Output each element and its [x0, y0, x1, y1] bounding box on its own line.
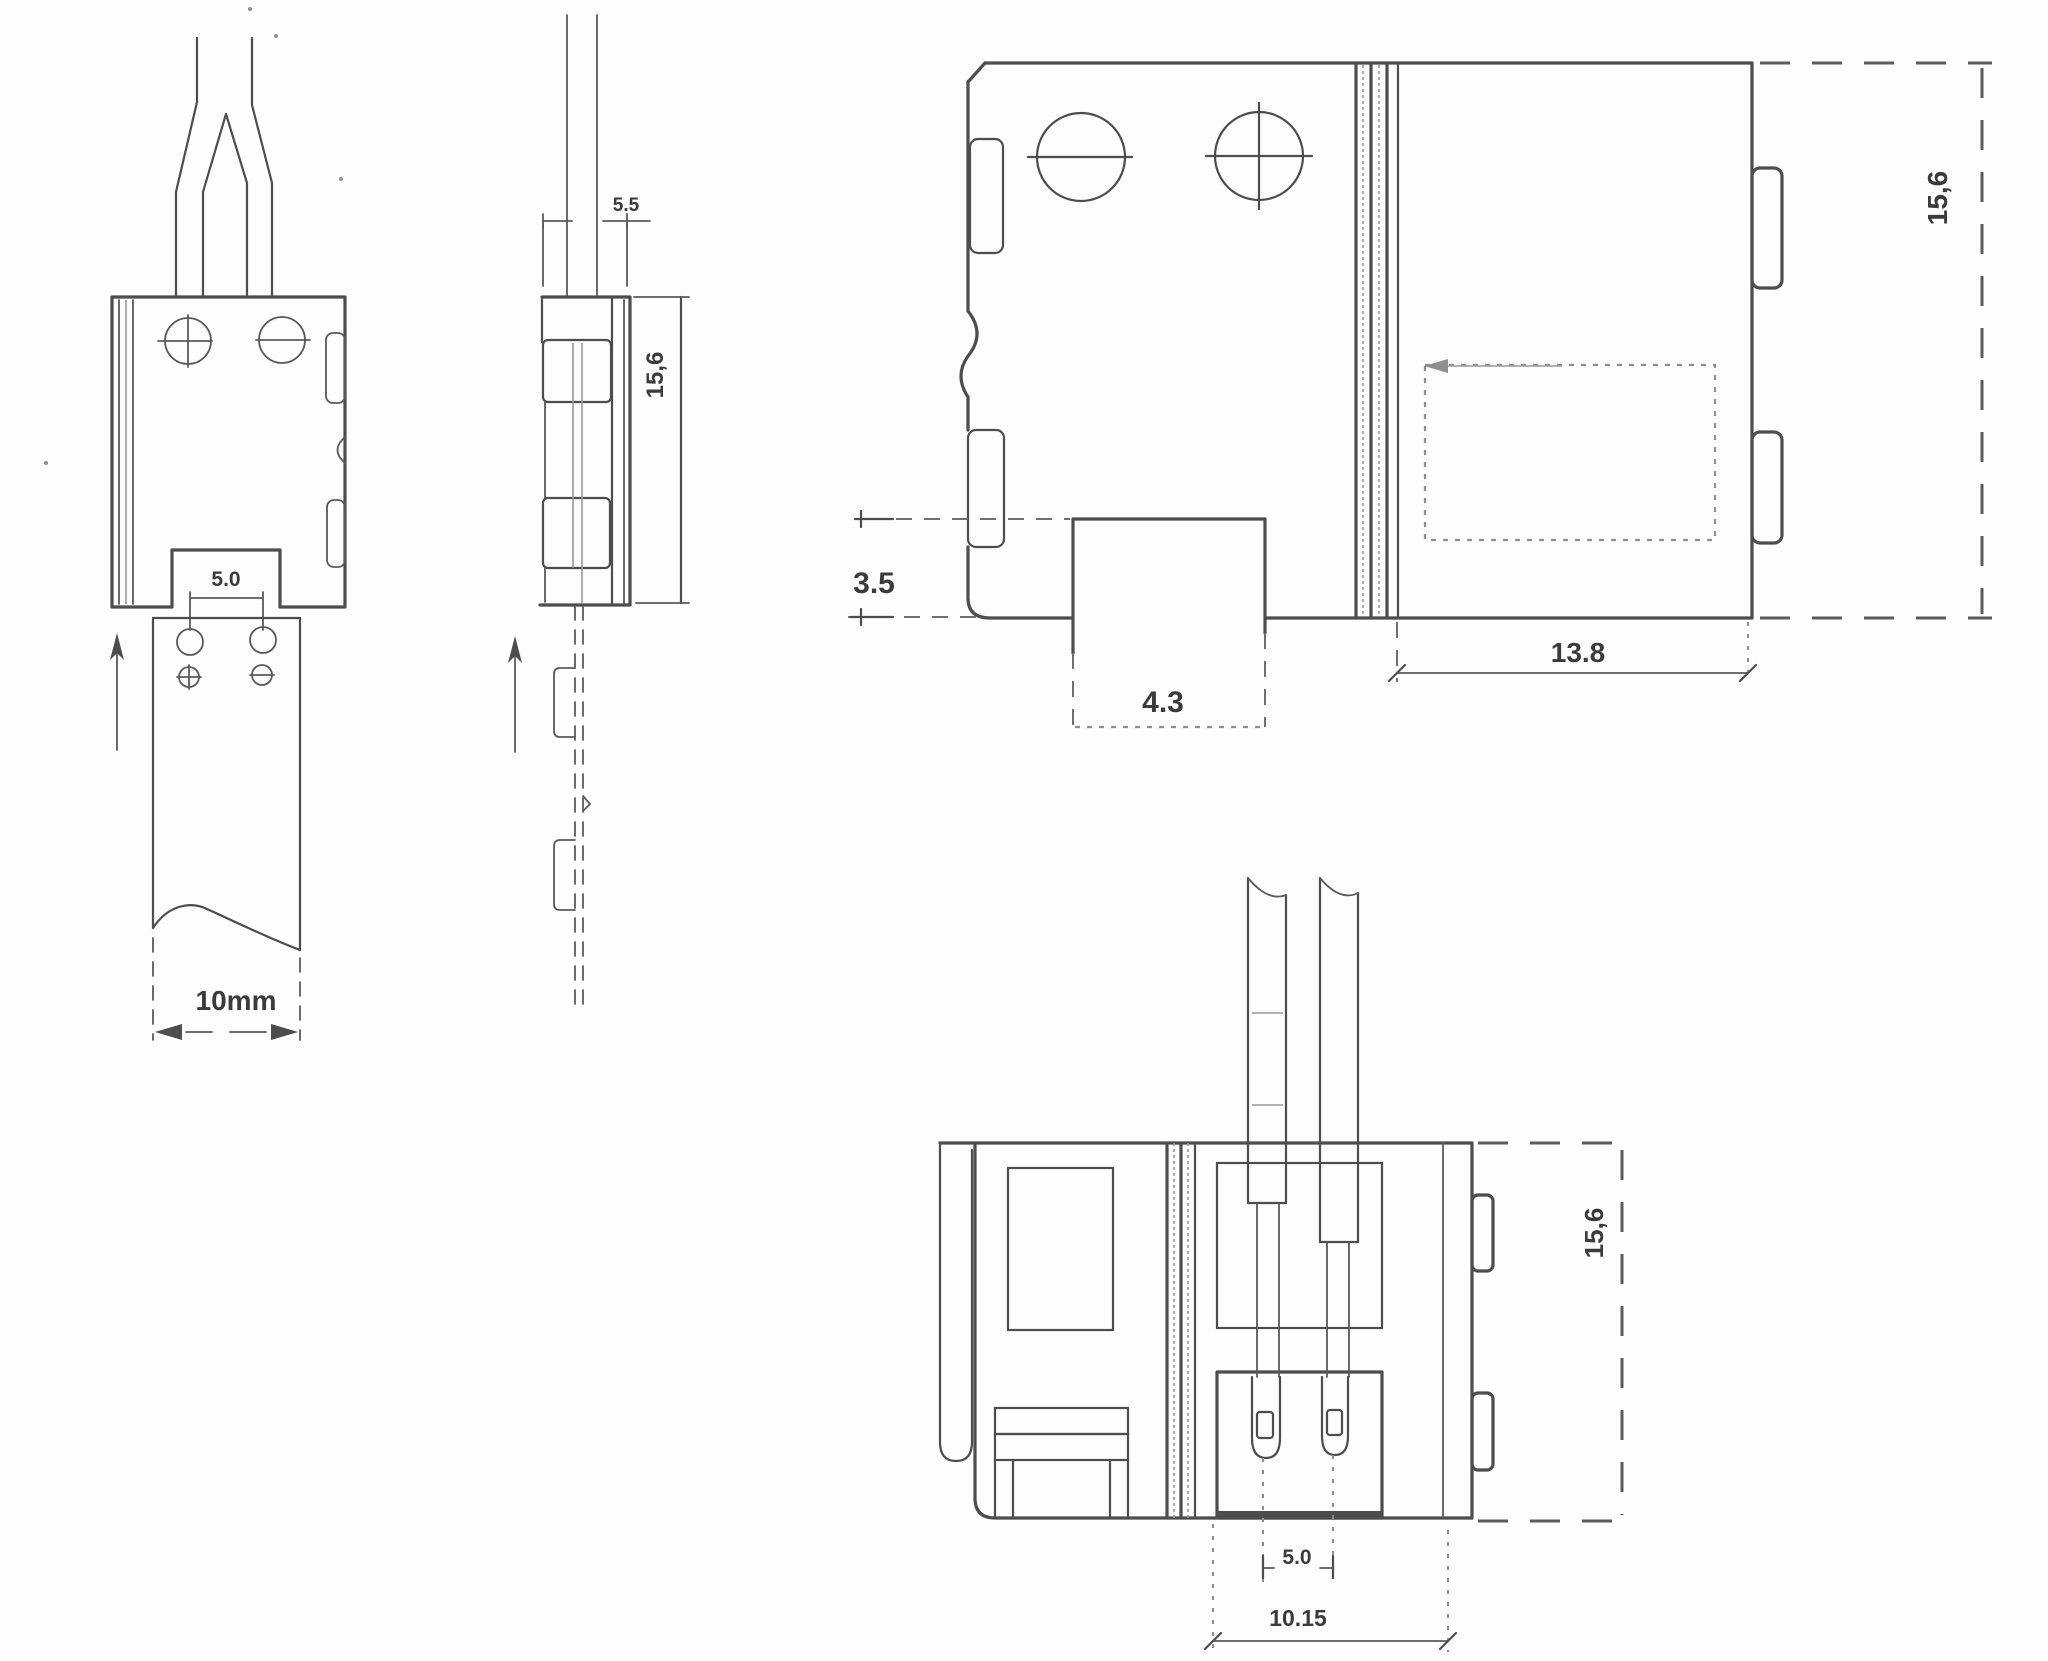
- dim-block-width-label: 10.15: [1269, 1605, 1327, 1631]
- bottom-view: 15,6 5.0 10.15: [940, 878, 1634, 1652]
- lever-window: [1008, 1168, 1113, 1330]
- dim-wire-offset-label: 5.5: [613, 195, 640, 216]
- wire-edge: [252, 38, 272, 297]
- wire-cut-end: [1320, 878, 1358, 895]
- front-view-wires: [176, 38, 272, 297]
- edge-tab: [1752, 168, 1782, 288]
- connector-body-outline: [112, 297, 345, 607]
- dim-terminal-pitch-label: 5.0: [1282, 1546, 1311, 1569]
- up-arrow-icon: [110, 633, 124, 750]
- terminal-contact: [1322, 1377, 1348, 1455]
- screw-minus-icon: [256, 317, 310, 363]
- clamp-hinge-band: [1167, 1143, 1195, 1518]
- dim-cover-width-label: 13.8: [1551, 637, 1606, 668]
- edge-tab: [1472, 1393, 1493, 1470]
- scan-specks: [44, 7, 343, 465]
- dim-latch-depth-label: 3.5: [853, 567, 895, 600]
- terminal-block: [1217, 1372, 1382, 1518]
- screw-cross-icon: [1206, 103, 1312, 209]
- side-notch: [327, 500, 345, 567]
- led-bump: [554, 840, 575, 910]
- plan-body-outline: [985, 63, 1752, 618]
- latch-window: [543, 498, 610, 568]
- minus-pad-icon: [250, 665, 274, 685]
- dim-side-height: 15,6: [634, 297, 689, 603]
- wire-cut-end: [1248, 878, 1286, 897]
- side-body: [540, 297, 630, 605]
- technical-drawing-canvas: 5.0: [0, 0, 2048, 1661]
- strip-edge-tick: [583, 796, 590, 811]
- dim-arrow-right: [271, 1024, 298, 1040]
- led-strip: [153, 618, 300, 1040]
- dim-tab-width-label: 4.3: [1142, 686, 1184, 719]
- dim-pad-notch: 5.0: [190, 568, 263, 630]
- wavy-notch: [961, 311, 977, 397]
- edge-notch: [970, 139, 1003, 253]
- drawing-sheet: 5.0: [0, 0, 2048, 1661]
- dim-latch-depth: 3.5: [848, 511, 1070, 625]
- dim-bottom-height: 15,6: [1478, 1143, 1634, 1521]
- dim-side-height-label: 15,6: [642, 352, 669, 399]
- dim-arrow-left: [155, 1024, 182, 1040]
- clamp-flange: [543, 340, 611, 402]
- clamp-hinge-band: [1356, 65, 1398, 617]
- plus-pad-icon: [177, 665, 201, 689]
- dim-terminal-pitch: 5.0: [1263, 1546, 1333, 1578]
- wire-conductor: [1257, 1203, 1279, 1377]
- dim-plan-height-label: 15,6: [1922, 171, 1953, 226]
- wire-edge: [176, 38, 197, 297]
- insert-arrow-icon: [1424, 359, 1562, 373]
- screw-cross-icon: [158, 315, 212, 367]
- clamp-hinge-band: [119, 300, 133, 604]
- wire-edge: [226, 114, 247, 297]
- up-arrow-icon: [508, 636, 522, 752]
- edge-tab: [968, 430, 1004, 547]
- bottom-tab: 4.3: [1073, 519, 1265, 727]
- terminal-contact: [1252, 1377, 1280, 1458]
- wire-conductor: [1327, 1242, 1349, 1377]
- edge-tab: [1752, 432, 1782, 543]
- dim-cover-width: 13.8: [1389, 622, 1756, 682]
- dim-bottom-height-label: 15,6: [1579, 1208, 1609, 1259]
- dim-strip-width: 10mm: [155, 985, 298, 1040]
- bottom-view-wires: [1248, 878, 1358, 1377]
- side-strip: [554, 606, 590, 1010]
- plan-view: 15,6 3.5 4.3 13.8: [848, 63, 1992, 727]
- dim-strip-width-label: 10mm: [196, 985, 277, 1016]
- side-view-wires: [567, 15, 597, 295]
- corner-chamfer: [968, 63, 985, 82]
- strip-window-dashed: [1425, 365, 1715, 540]
- wire-edge: [203, 114, 226, 297]
- front-view: 5.0: [110, 38, 345, 1040]
- side-notch: [326, 333, 345, 403]
- latch-bar: [995, 1408, 1128, 1518]
- screw-minus-icon: [1028, 113, 1132, 201]
- led-bump: [554, 668, 575, 737]
- dim-block-width: 10.15: [1205, 1524, 1456, 1652]
- side-view: 5.5: [508, 15, 689, 1010]
- dim-plan-height: 15,6: [1760, 63, 1992, 618]
- strip-break-line: [153, 905, 300, 950]
- solder-pad: [177, 629, 203, 655]
- edge-tab: [1472, 1195, 1493, 1271]
- dim-pad-notch-label: 5.0: [211, 568, 240, 591]
- clamp-lever: [940, 1145, 972, 1461]
